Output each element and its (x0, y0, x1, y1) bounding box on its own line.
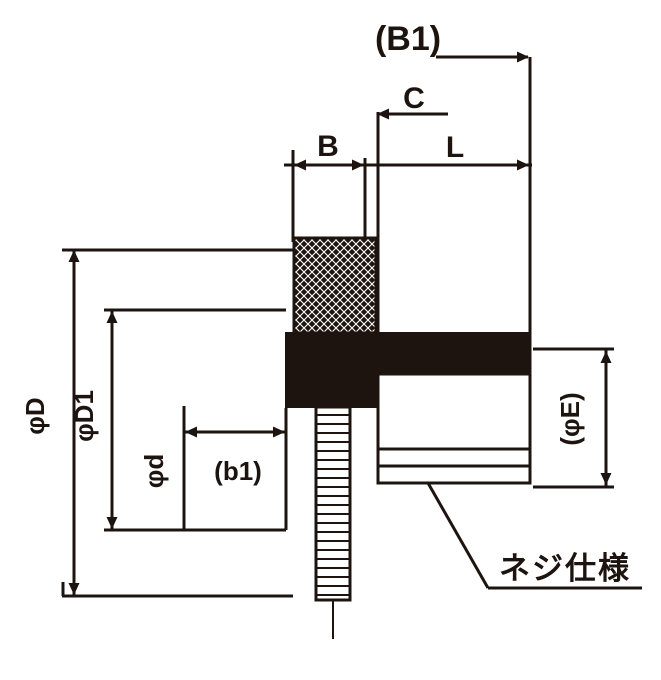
label-phi-d: φD (20, 397, 50, 434)
label-thread-note: ネジ仕様 (499, 551, 631, 586)
label-phi-e: (φE) (555, 392, 585, 445)
drawing-canvas: (B1) C B L φD φD1 φd (b1) (φE) ネジ仕様 (0, 0, 661, 680)
technical-drawing: (B1) C B L φD φD1 φd (b1) (φE) ネジ仕様 (0, 0, 661, 680)
thread-lines (316, 415, 350, 595)
threaded-stud (316, 407, 350, 600)
dimension-line-phi-e (601, 350, 612, 486)
flange-block (286, 374, 384, 407)
knurled-cap (294, 238, 376, 333)
label-l: L (446, 131, 464, 164)
dimension-line-b1 (436, 52, 529, 63)
label-phi-d1: φD1 (69, 390, 99, 442)
label-b1-small: (b1) (214, 456, 262, 486)
flange-bar (286, 333, 530, 374)
label-b: B (317, 130, 339, 163)
label-b1-top: (B1) (375, 20, 441, 58)
dimension-line-phi-d-small-b1 (184, 427, 286, 438)
dimension-line-phi-d1 (107, 310, 118, 530)
part-outline (286, 238, 530, 639)
label-c: C (403, 82, 425, 115)
label-phi-d-small: φd (139, 454, 169, 488)
